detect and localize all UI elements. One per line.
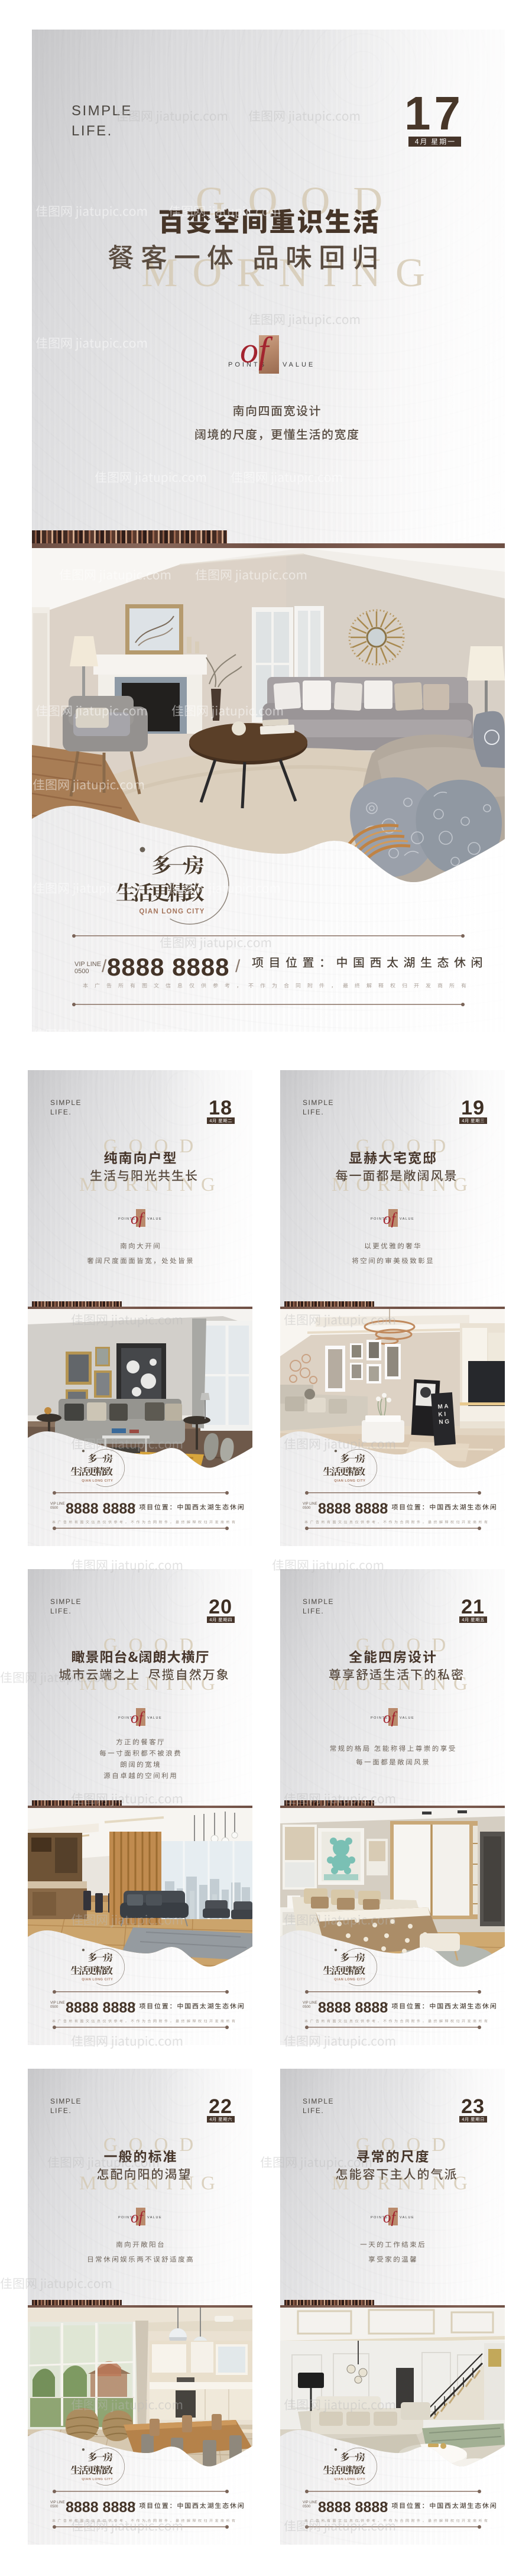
svg-text:of: of (383, 1210, 398, 1227)
svg-text:M A: M A (437, 1403, 449, 1410)
svg-text:VALUE: VALUE (147, 1217, 162, 1221)
svg-text:of: of (383, 1709, 398, 1726)
svg-text:K I: K I (438, 1411, 446, 1418)
svg-text:of: of (131, 1210, 145, 1227)
svg-text:of: of (131, 2208, 145, 2226)
svg-text:of: of (383, 2208, 398, 2226)
svg-text:N G: N G (439, 1418, 450, 1425)
svg-text:VALUE: VALUE (400, 1217, 414, 1221)
svg-text:VALUE: VALUE (400, 1716, 414, 1720)
svg-text:VALUE: VALUE (147, 2216, 162, 2219)
svg-text:of: of (131, 1709, 145, 1726)
svg-text:VALUE: VALUE (400, 2216, 414, 2219)
svg-text:VALUE: VALUE (147, 1716, 162, 1720)
